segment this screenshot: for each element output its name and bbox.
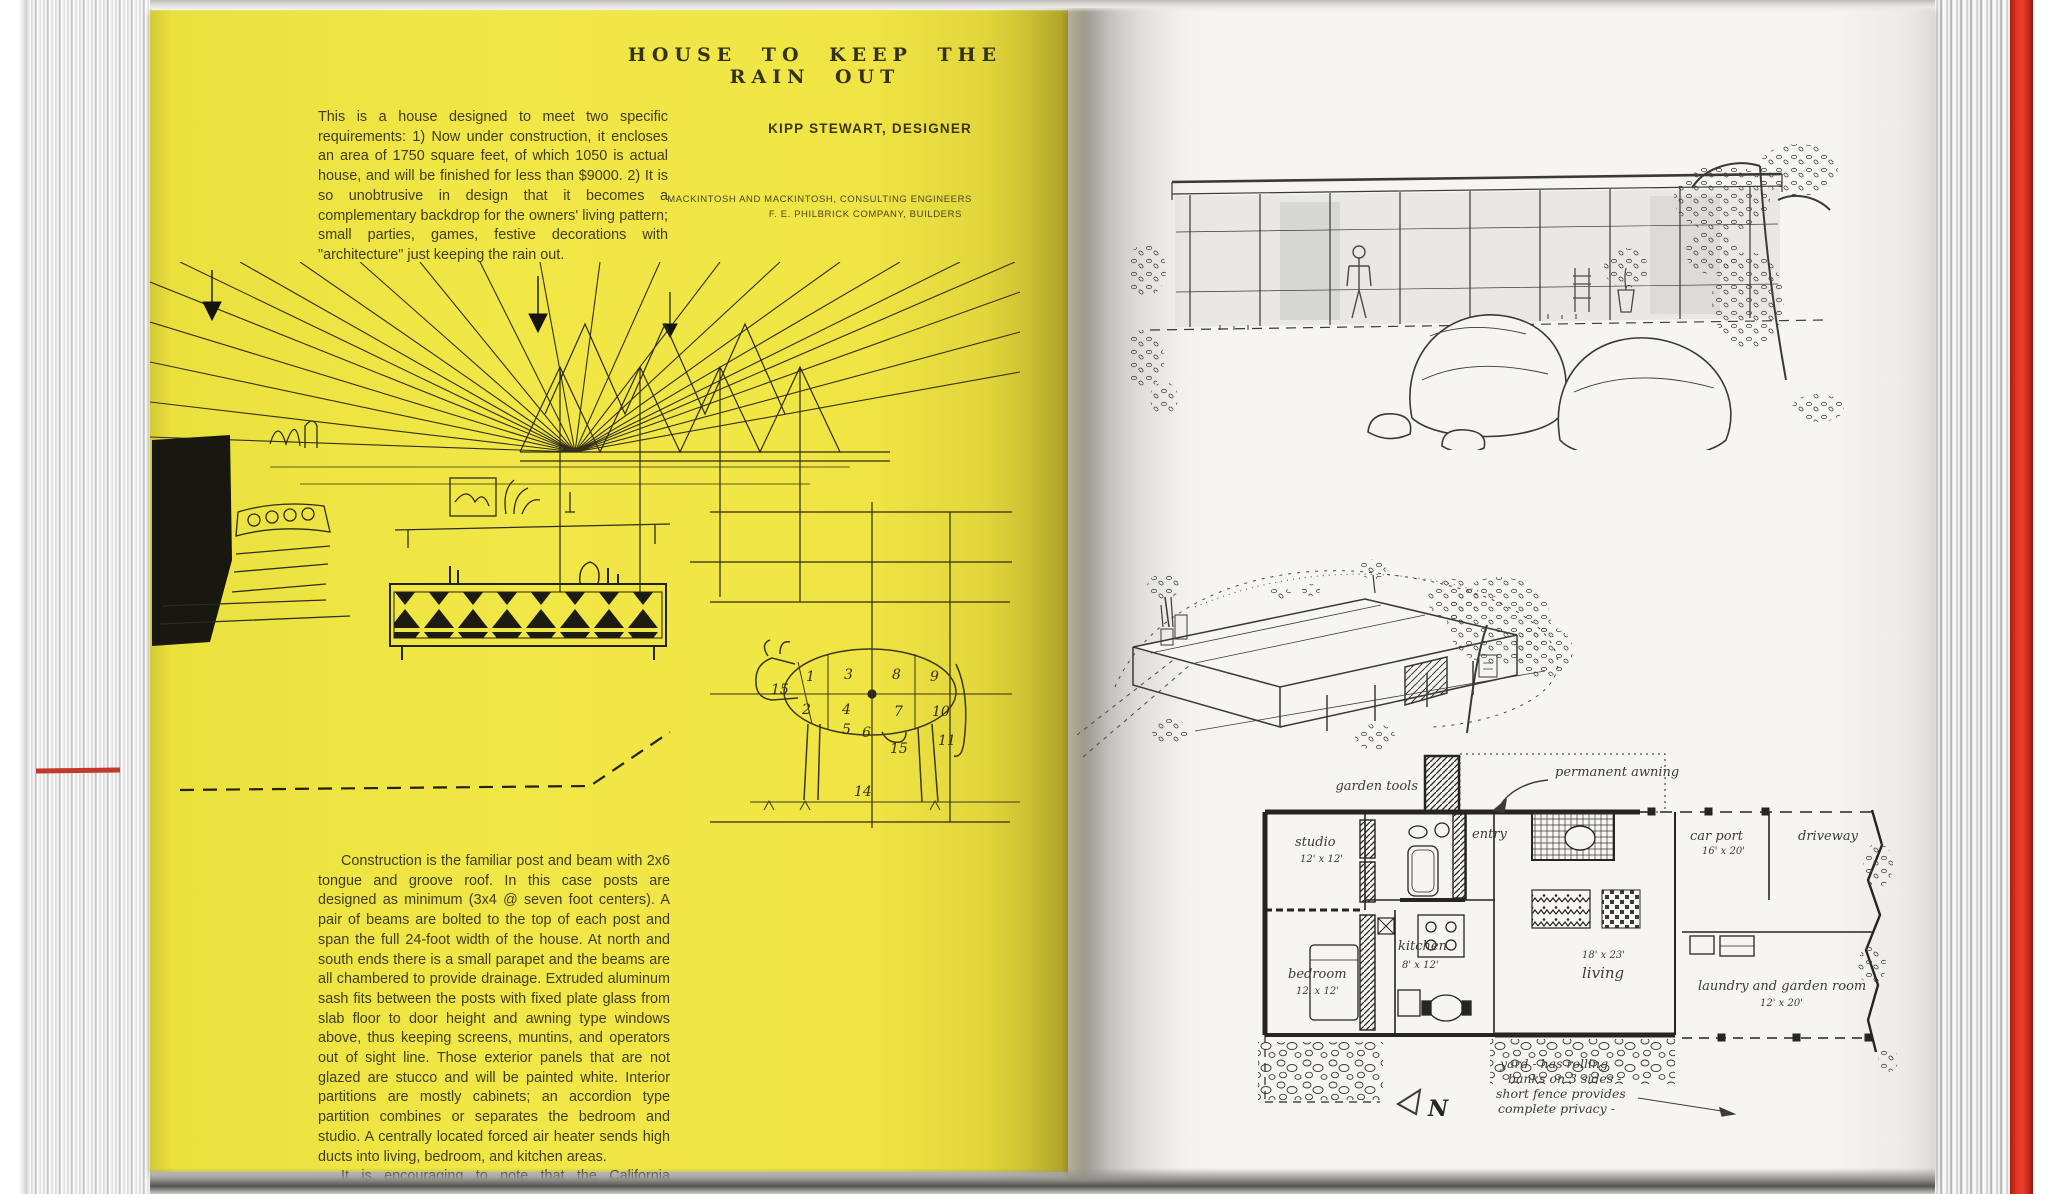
svg-text:permanent awning: permanent awning bbox=[1555, 765, 1679, 780]
dashed-ground-line bbox=[180, 732, 670, 790]
svg-text:1: 1 bbox=[806, 669, 815, 685]
cow-diagram bbox=[750, 640, 1020, 810]
intro-paragraph: This is a house designed to meet two spe… bbox=[318, 108, 668, 266]
svg-text:14: 14 bbox=[854, 784, 872, 800]
book-cover-edge-right bbox=[2033, 0, 2048, 1194]
svg-text:yard - has rolling: yard - has rolling bbox=[1499, 1056, 1608, 1071]
svg-text:complete privacy -: complete privacy - bbox=[1498, 1101, 1615, 1116]
svg-text:12' x 20': 12' x 20' bbox=[1760, 998, 1803, 1009]
red-page-edge-mark bbox=[36, 768, 120, 774]
pendant-lamp-icons bbox=[203, 270, 677, 337]
svg-text:garden tools: garden tools bbox=[1335, 779, 1418, 794]
svg-text:kitchen: kitchen bbox=[1398, 939, 1447, 954]
svg-text:5: 5 bbox=[842, 722, 851, 738]
svg-text:living: living bbox=[1582, 964, 1624, 982]
elevation-drawing bbox=[1130, 140, 1850, 450]
page-stack-right bbox=[1935, 0, 2010, 1194]
plan-cabinet-walls bbox=[1360, 756, 1465, 1030]
construction-paragraph: Construction is the familiar post and be… bbox=[318, 852, 670, 1167]
patterned-cabinet bbox=[390, 562, 666, 660]
svg-text:entry: entry bbox=[1472, 827, 1508, 842]
page-stack-left bbox=[30, 0, 152, 1194]
perspective-sketch bbox=[1075, 535, 1595, 775]
svg-text:6: 6 bbox=[862, 725, 871, 741]
dark-doorway bbox=[152, 435, 232, 646]
svg-text:driveway: driveway bbox=[1798, 829, 1859, 844]
construction-text-block: Construction is the familiar post and be… bbox=[318, 852, 670, 1194]
page-bottom-edge bbox=[150, 1168, 1935, 1194]
svg-text:11: 11 bbox=[938, 733, 956, 749]
svg-text:car port: car port bbox=[1690, 829, 1744, 844]
svg-text:8: 8 bbox=[892, 667, 901, 683]
engineers-credit: MACKINTOSH AND MACKINTOSH, CONSULTING EN… bbox=[620, 192, 972, 207]
ceiling-ray-lines bbox=[150, 262, 1020, 484]
svg-text:short fence provides: short fence provides bbox=[1496, 1086, 1626, 1101]
svg-text:studio: studio bbox=[1295, 835, 1336, 850]
wall-shelf-sketch bbox=[395, 478, 670, 548]
roof-framing-sketch bbox=[520, 324, 1012, 828]
svg-text:15: 15 bbox=[890, 741, 908, 757]
svg-text:4: 4 bbox=[841, 702, 851, 718]
svg-text:18' x 23': 18' x 23' bbox=[1582, 950, 1625, 961]
book-photo: HOUSE TO KEEP THE RAIN OUT This is a hou… bbox=[0, 0, 2048, 1194]
builders-credit: F. E. PHILBRICK COMPANY, BUILDERS bbox=[620, 207, 962, 222]
svg-text:15: 15 bbox=[771, 682, 789, 698]
svg-text:12' x 12': 12' x 12' bbox=[1296, 986, 1339, 997]
svg-text:16' x 20': 16' x 20' bbox=[1702, 846, 1745, 857]
svg-text:laundry and garden room: laundry and garden room bbox=[1698, 979, 1866, 994]
interior-illustration: 1 3 8 9 15 2 4 7 10 5 6 15 11 14 bbox=[150, 262, 1020, 852]
yard-note: yard - has rolling banks on 3 sides - sh… bbox=[1496, 1056, 1626, 1116]
compass-north-label: N bbox=[1427, 1096, 1449, 1122]
svg-text:banks on 3 sides -: banks on 3 sides - bbox=[1508, 1071, 1621, 1086]
svg-text:7: 7 bbox=[894, 704, 903, 720]
designer-credit: KIPP STEWART, DESIGNER bbox=[700, 121, 972, 136]
tree-sketch bbox=[1674, 144, 1838, 380]
boulders-sketch bbox=[1368, 315, 1731, 450]
svg-text:9: 9 bbox=[930, 669, 939, 685]
cow-cut-numbers: 1 3 8 9 15 2 4 7 10 5 6 15 11 14 bbox=[771, 667, 956, 800]
svg-text:bedroom: bedroom bbox=[1288, 967, 1347, 982]
page-top-edge bbox=[150, 0, 1935, 12]
svg-text:8' x 12': 8' x 12' bbox=[1402, 960, 1439, 971]
book-cover-edge-left bbox=[0, 0, 30, 1194]
red-cover-band bbox=[2010, 0, 2033, 1194]
svg-text:3: 3 bbox=[844, 667, 853, 683]
page-title: HOUSE TO KEEP THE RAIN OUT bbox=[600, 44, 1030, 88]
svg-text:10: 10 bbox=[932, 704, 950, 720]
svg-text:2: 2 bbox=[801, 702, 811, 718]
svg-text:12' x 12': 12' x 12' bbox=[1300, 854, 1343, 865]
floor-plan: N garden tools permanent awning entry st… bbox=[1250, 750, 1910, 1150]
